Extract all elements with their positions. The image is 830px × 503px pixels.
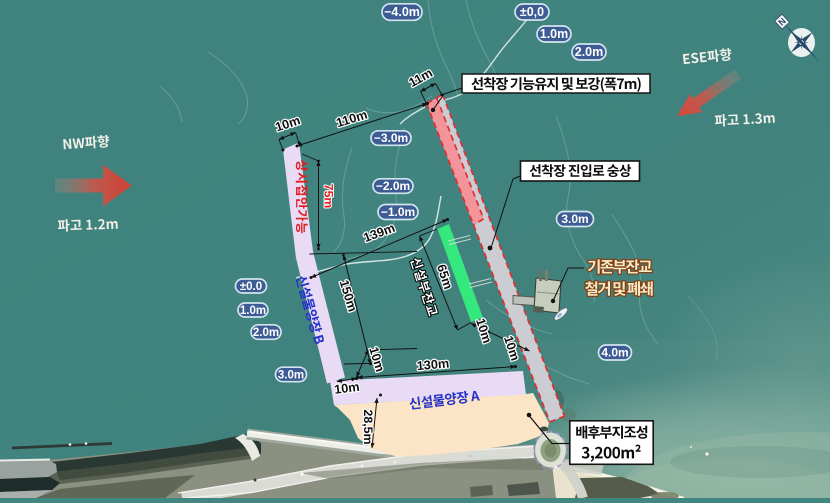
svg-text:2.0m: 2.0m <box>253 327 279 339</box>
svg-text:−3.0m: −3.0m <box>374 131 408 145</box>
svg-text:3.0m: 3.0m <box>561 212 588 226</box>
svg-text:−1.0m: −1.0m <box>381 205 415 219</box>
svg-text:1.0m: 1.0m <box>540 27 569 41</box>
svg-text:75m: 75m <box>321 184 335 209</box>
svg-text:28,5m: 28,5m <box>361 409 375 444</box>
svg-text:−2.0m: −2.0m <box>376 179 410 193</box>
svg-text:3.0m: 3.0m <box>278 369 304 381</box>
svg-text:±0,0: ±0,0 <box>520 5 544 19</box>
svg-text:±0.0: ±0.0 <box>240 281 262 293</box>
svg-text:2.0m: 2.0m <box>575 45 604 59</box>
svg-text:−4.0m: −4.0m <box>384 5 420 19</box>
svg-text:130m: 130m <box>416 356 450 373</box>
svg-text:4.0m: 4.0m <box>601 345 628 359</box>
svg-text:1.0m: 1.0m <box>240 305 266 317</box>
